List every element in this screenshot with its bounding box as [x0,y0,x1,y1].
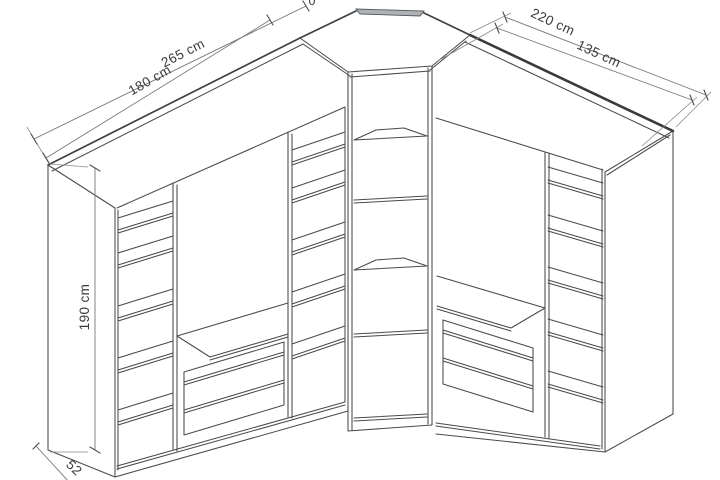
dimension-line-180 [46,20,270,158]
corner-top-back-strip [356,9,424,16]
technical-drawing-canvas: 265 cm 180 cm 220 cm 135 cm 190 cm 52 0 [0,0,720,480]
right-unit-top-panel [436,42,673,175]
right-unit-drawers [443,320,533,412]
left-unit-left-shelf-column [118,201,173,425]
dimension-label-top-partial: 0 [309,0,316,8]
corner-wardrobe-diagram: 265 cm 180 cm 220 cm 135 cm 190 cm 52 0 [0,0,720,480]
dimension-label-180: 180 cm [126,62,174,98]
right-wardrobe-unit [436,35,673,452]
dimension-label-52: 52 [63,457,85,479]
dimension-annotations: 265 cm 180 cm 220 cm 135 cm 190 cm 52 0 [27,0,711,480]
right-unit-side-panel [602,131,673,452]
corner-top-surface [300,35,470,77]
extension-lines [27,13,711,452]
right-unit-divider [545,152,549,438]
dimension-label-190: 190 cm [77,284,92,331]
corner-cabinet [300,9,470,431]
left-unit-bench-shelf [177,303,288,360]
left-unit-base [115,402,348,477]
right-unit-top-back-edge [470,35,673,131]
left-wardrobe-unit [48,38,348,477]
left-unit-drawers [184,342,284,435]
left-unit-dividers [173,107,345,451]
right-unit-shelf-column [548,167,603,403]
corner-shelves [354,128,427,337]
left-unit-top-panel [52,44,345,208]
left-unit-right-shelf-column [292,132,345,359]
corner-front-edges [348,66,432,431]
dimension-line-135 [497,28,692,100]
right-unit-base [436,423,605,452]
corner-base [348,414,432,431]
dimension-line-52 [36,446,70,480]
dimension-label-220: 220 cm [529,5,578,38]
